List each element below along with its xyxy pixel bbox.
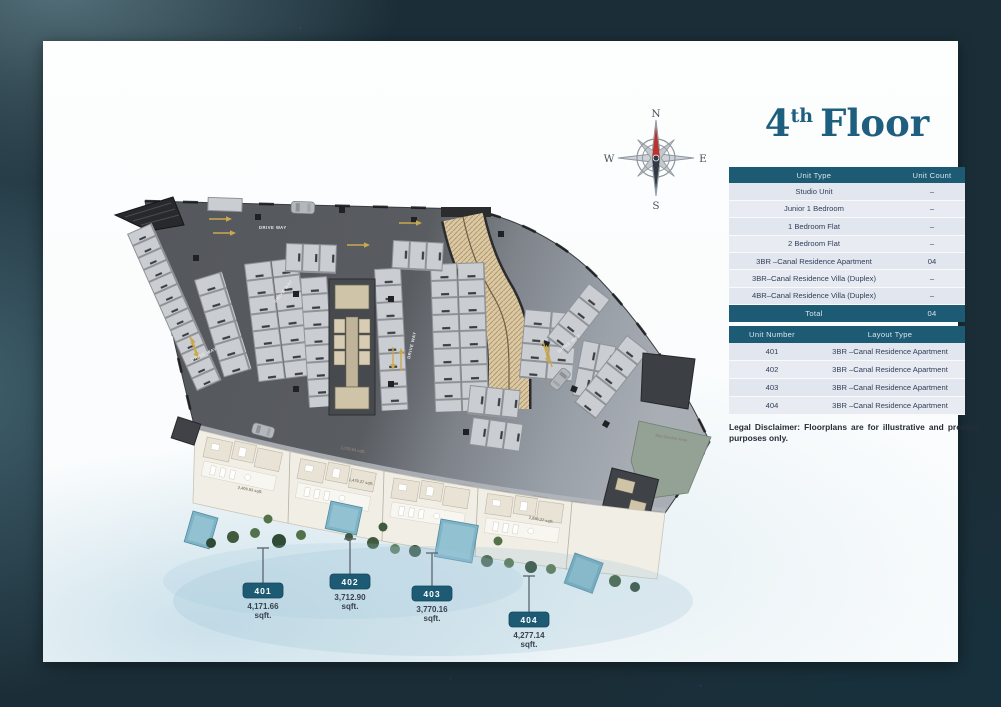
title-ordinal: th [790,105,813,127]
unit-type-cell: 3BR –Canal Residence Apartment [729,257,899,266]
table-row: 4043BR –Canal Residence Apartment [729,397,965,415]
table-row: 1 Bedroom Flat– [729,218,965,235]
title-word: Floor [820,101,929,145]
unit-count-cell: 04 [899,257,965,266]
unit-type-cell: 2 Bedroom Flat [729,239,899,248]
layout-type-cell: 3BR –Canal Residence Apartment [815,365,965,374]
unit-area-value: 3,770.16 [416,605,448,614]
unit-count-cell: – [899,291,965,300]
unit-type-table-header: Unit Type Unit Count [729,167,965,183]
unit-area-suffix: sqft. [521,640,538,649]
unit-number-badge: 401 [254,586,271,596]
unit-area-value: 4,277.14 [513,631,545,640]
unit-area-value: 4,171.66 [247,602,279,611]
unit-count-cell: – [899,274,965,283]
unit-number-badge: 404 [520,615,537,625]
layout-type-cell: 3BR –Canal Residence Apartment [815,383,965,392]
driveway-label: DRIVE WAY [259,225,287,230]
unit-number-cell: 404 [729,401,815,410]
unit-number-badge: 402 [341,577,358,587]
title-number: 4 [765,101,791,145]
table-row: Junior 1 Bedroom– [729,201,965,218]
total-label: Total [729,309,899,318]
unit-number-table: Unit Number Layout Type 4013BR –Canal Re… [729,326,965,415]
unit-area-suffix: sqft. [255,611,272,620]
unit-number-table-header: Unit Number Layout Type [729,326,965,343]
unit-number-cell: 403 [729,383,815,392]
legal-disclaimer-label: Legal Disclaimer: [729,422,800,432]
col-header-unit-count: Unit Count [899,171,965,180]
compass-rose: N E S W [599,101,713,213]
unit-type-cell: Studio Unit [729,187,899,196]
unit-number-cell: 402 [729,365,815,374]
unit-count-cell: – [899,187,965,196]
unit-count-cell: – [899,239,965,248]
table-row: Studio Unit– [729,183,965,200]
total-count: 04 [899,309,965,318]
compass-west-label: W [604,153,615,165]
unit-type-cell: Junior 1 Bedroom [729,204,899,213]
col-header-unit-type: Unit Type [729,171,899,180]
compass-east-label: E [699,153,707,165]
layout-type-cell: 3BR –Canal Residence Apartment [815,347,965,356]
table-row: 2 Bedroom Flat– [729,236,965,253]
layout-type-cell: 3BR –Canal Residence Apartment [815,401,965,410]
table-row: 4013BR –Canal Residence Apartment [729,343,965,361]
legal-disclaimer: Legal Disclaimer: Floorplans are for ill… [729,422,979,445]
floorplan-drawing: Sky Garden Area [93,189,743,659]
page-title: 4thFloor [729,105,965,142]
elevator-core [329,279,375,415]
unit-number-badge: 403 [423,589,440,599]
unit-area-suffix: sqft. [342,602,359,611]
compass-north-label: N [651,108,660,120]
unit-area-suffix: sqft. [424,614,441,623]
table-row: 4BR–Canal Residence Villa (Duplex)– [729,288,965,305]
col-header-unit-number: Unit Number [729,330,815,339]
table-row: 4033BR –Canal Residence Apartment [729,379,965,397]
unit-type-table: Unit Type Unit Count Studio Unit– Junior… [729,167,965,322]
unit-area-value: 3,712.90 [334,593,366,602]
unit-count-cell: – [899,222,965,231]
table-total-row: Total 04 [729,305,965,321]
col-header-layout-type: Layout Type [815,330,965,339]
compass-south-label: S [652,200,659,212]
unit-number-cell: 401 [729,347,815,356]
table-row: 3BR –Canal Residence Apartment04 [729,253,965,270]
table-row: 4023BR –Canal Residence Apartment [729,361,965,379]
table-row: 3BR–Canal Residence Villa (Duplex)– [729,270,965,287]
unit-type-cell: 1 Bedroom Flat [729,222,899,231]
unit-type-cell: 3BR–Canal Residence Villa (Duplex) [729,274,899,283]
unit-type-cell: 4BR–Canal Residence Villa (Duplex) [729,291,899,300]
unit-count-cell: – [899,204,965,213]
floorplan-sheet-card: Sky Garden Area [43,41,958,662]
